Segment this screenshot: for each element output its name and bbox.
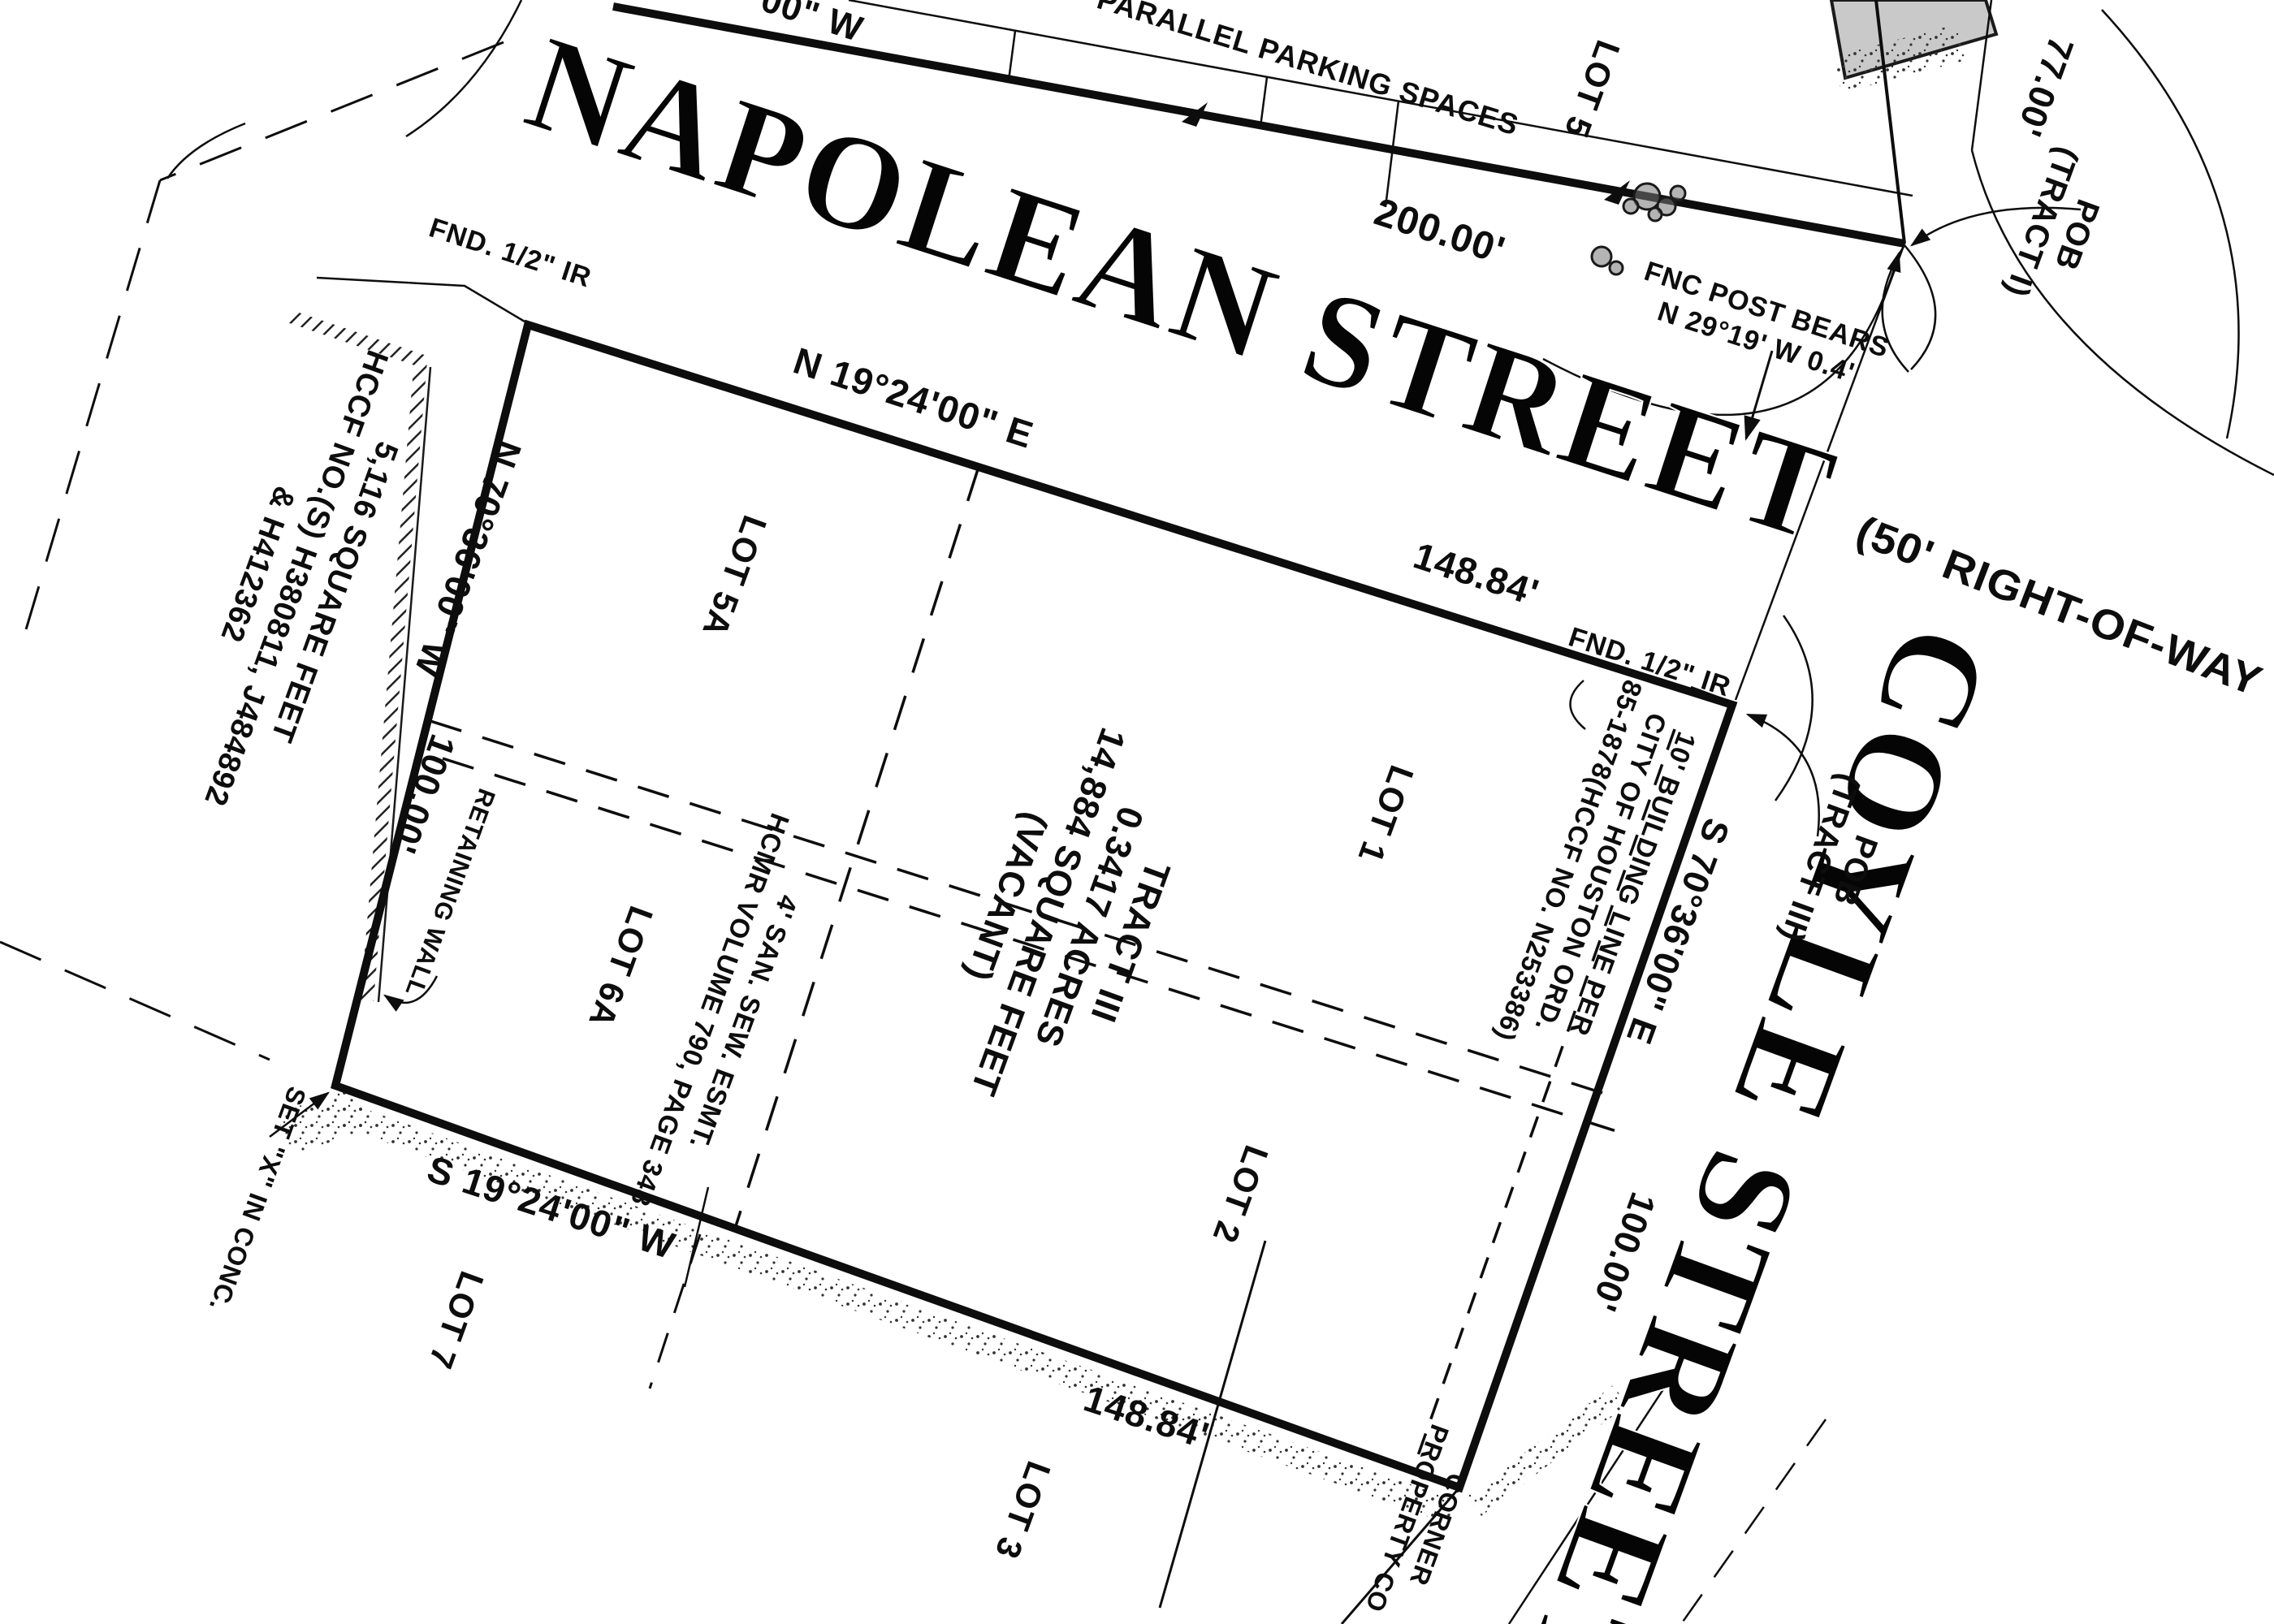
plat-drawing: NAPOLEAN STREET COYLE STREET (50' RIGHT-… (0, 0, 2274, 1624)
survey-plat-sheet: NAPOLEAN STREET COYLE STREET (50' RIGHT-… (0, 0, 2274, 1624)
